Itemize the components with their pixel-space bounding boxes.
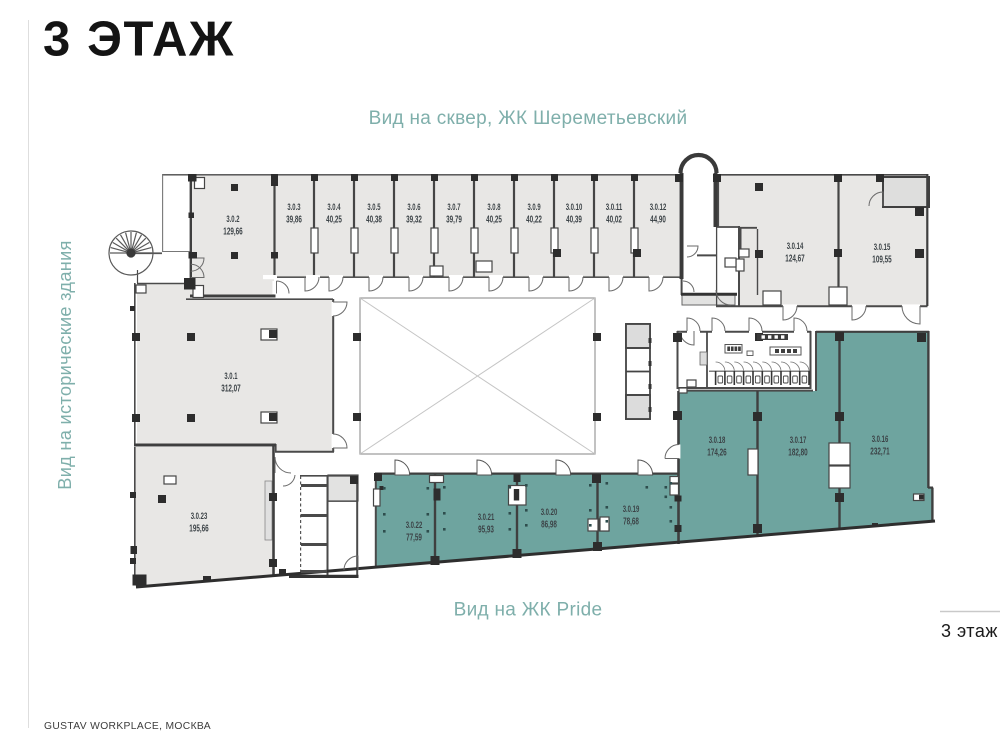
svg-text:3.0.9: 3.0.9 [528,202,541,212]
svg-text:3.0.8: 3.0.8 [487,202,500,212]
svg-text:77,59: 77,59 [406,533,422,544]
svg-text:3 этаж: 3 этаж [941,621,998,641]
svg-text:3.0.7: 3.0.7 [447,202,460,212]
svg-text:40,25: 40,25 [326,215,342,226]
svg-text:3.0.19: 3.0.19 [623,504,640,514]
svg-text:3.0.18: 3.0.18 [709,435,726,445]
svg-text:3.0.14: 3.0.14 [787,241,804,251]
svg-text:40,38: 40,38 [366,215,382,226]
svg-text:40,25: 40,25 [486,215,502,226]
svg-text:3.0.12: 3.0.12 [650,202,667,212]
svg-text:86,98: 86,98 [541,520,557,531]
svg-text:40,39: 40,39 [566,215,582,226]
svg-text:3.0.22: 3.0.22 [406,520,423,530]
svg-text:3.0.20: 3.0.20 [541,507,558,517]
svg-text:3.0.15: 3.0.15 [874,242,891,252]
svg-text:232,71: 232,71 [870,447,890,458]
svg-text:3.0.1: 3.0.1 [224,371,237,381]
svg-text:78,68: 78,68 [623,517,639,528]
svg-text:3.0.6: 3.0.6 [407,202,420,212]
svg-text:40,22: 40,22 [526,215,542,226]
svg-text:39,86: 39,86 [286,215,302,226]
svg-text:312,07: 312,07 [221,384,241,395]
svg-text:44,90: 44,90 [650,215,666,226]
svg-text:3.0.23: 3.0.23 [191,511,208,521]
svg-text:3.0.17: 3.0.17 [790,435,807,445]
svg-text:174,26: 174,26 [707,448,727,459]
svg-text:39,32: 39,32 [406,215,422,226]
svg-text:Вид на сквер, ЖК Шереметьевски: Вид на сквер, ЖК Шереметьевский [369,108,688,129]
svg-text:3.0.2: 3.0.2 [226,214,239,224]
svg-text:129,66: 129,66 [223,227,243,238]
svg-text:GUSTAV WORKPLACE, МОСКВА: GUSTAV WORKPLACE, МОСКВА [44,721,211,732]
svg-text:3.0.5: 3.0.5 [367,202,380,212]
svg-text:95,93: 95,93 [478,525,494,536]
svg-text:3.0.16: 3.0.16 [872,434,889,444]
svg-text:195,66: 195,66 [189,524,209,535]
svg-text:3.0.10: 3.0.10 [566,202,583,212]
svg-text:109,55: 109,55 [872,255,892,266]
svg-text:39,79: 39,79 [446,215,462,226]
svg-text:40,02: 40,02 [606,215,622,226]
svg-text:3.0.4: 3.0.4 [327,202,341,212]
svg-text:3 ЭТАЖ: 3 ЭТАЖ [43,13,235,67]
svg-text:124,67: 124,67 [785,254,805,265]
svg-text:3.0.21: 3.0.21 [478,512,495,522]
svg-text:182,80: 182,80 [788,448,808,459]
svg-text:Вид на исторические здания: Вид на исторические здания [55,240,75,489]
svg-text:3.0.11: 3.0.11 [606,202,623,212]
svg-text:3.0.3: 3.0.3 [287,202,300,212]
svg-text:Вид на ЖК Pride: Вид на ЖК Pride [454,600,603,621]
